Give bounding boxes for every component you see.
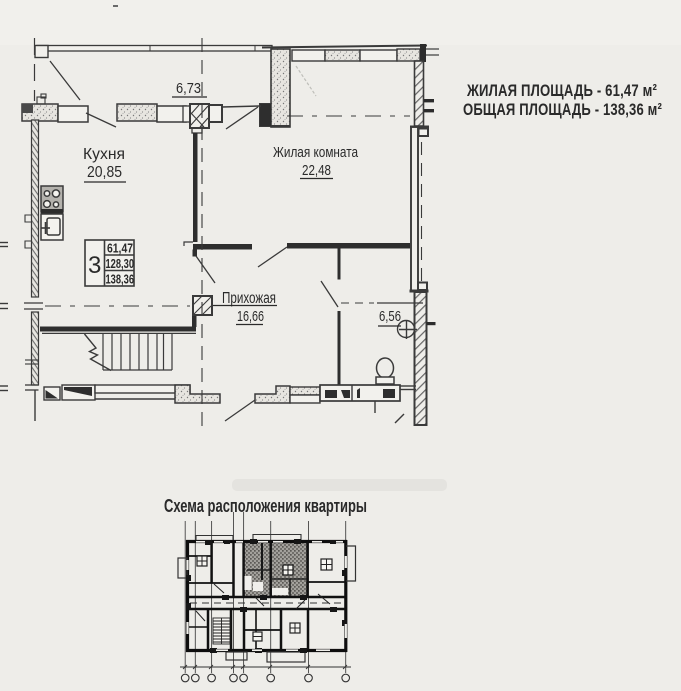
svg-text:138,36: 138,36 [106, 273, 135, 287]
svg-text:16,66: 16,66 [237, 308, 264, 325]
svg-text:6,56: 6,56 [379, 309, 401, 325]
svg-text:ЖИЛАЯ ПЛОЩАДЬ - 61,47 м²: ЖИЛАЯ ПЛОЩАДЬ - 61,47 м² [466, 82, 657, 100]
svg-text:Жилая комната: Жилая комната [273, 144, 359, 161]
svg-text:20,85: 20,85 [87, 164, 122, 181]
svg-text:6,73: 6,73 [176, 81, 201, 97]
svg-text:61,47: 61,47 [107, 242, 133, 256]
svg-text:Прихожая: Прихожая [222, 290, 276, 307]
svg-text:22,48: 22,48 [302, 162, 331, 179]
svg-text:Схема расположения квартиры: Схема расположения квартиры [164, 495, 367, 516]
svg-text:ОБЩАЯ ПЛОЩАДЬ - 138,36 м²: ОБЩАЯ ПЛОЩАДЬ - 138,36 м² [463, 101, 662, 119]
svg-text:Кухня: Кухня [83, 146, 125, 163]
svg-text:128,30: 128,30 [106, 257, 135, 271]
svg-text:3: 3 [88, 252, 101, 279]
